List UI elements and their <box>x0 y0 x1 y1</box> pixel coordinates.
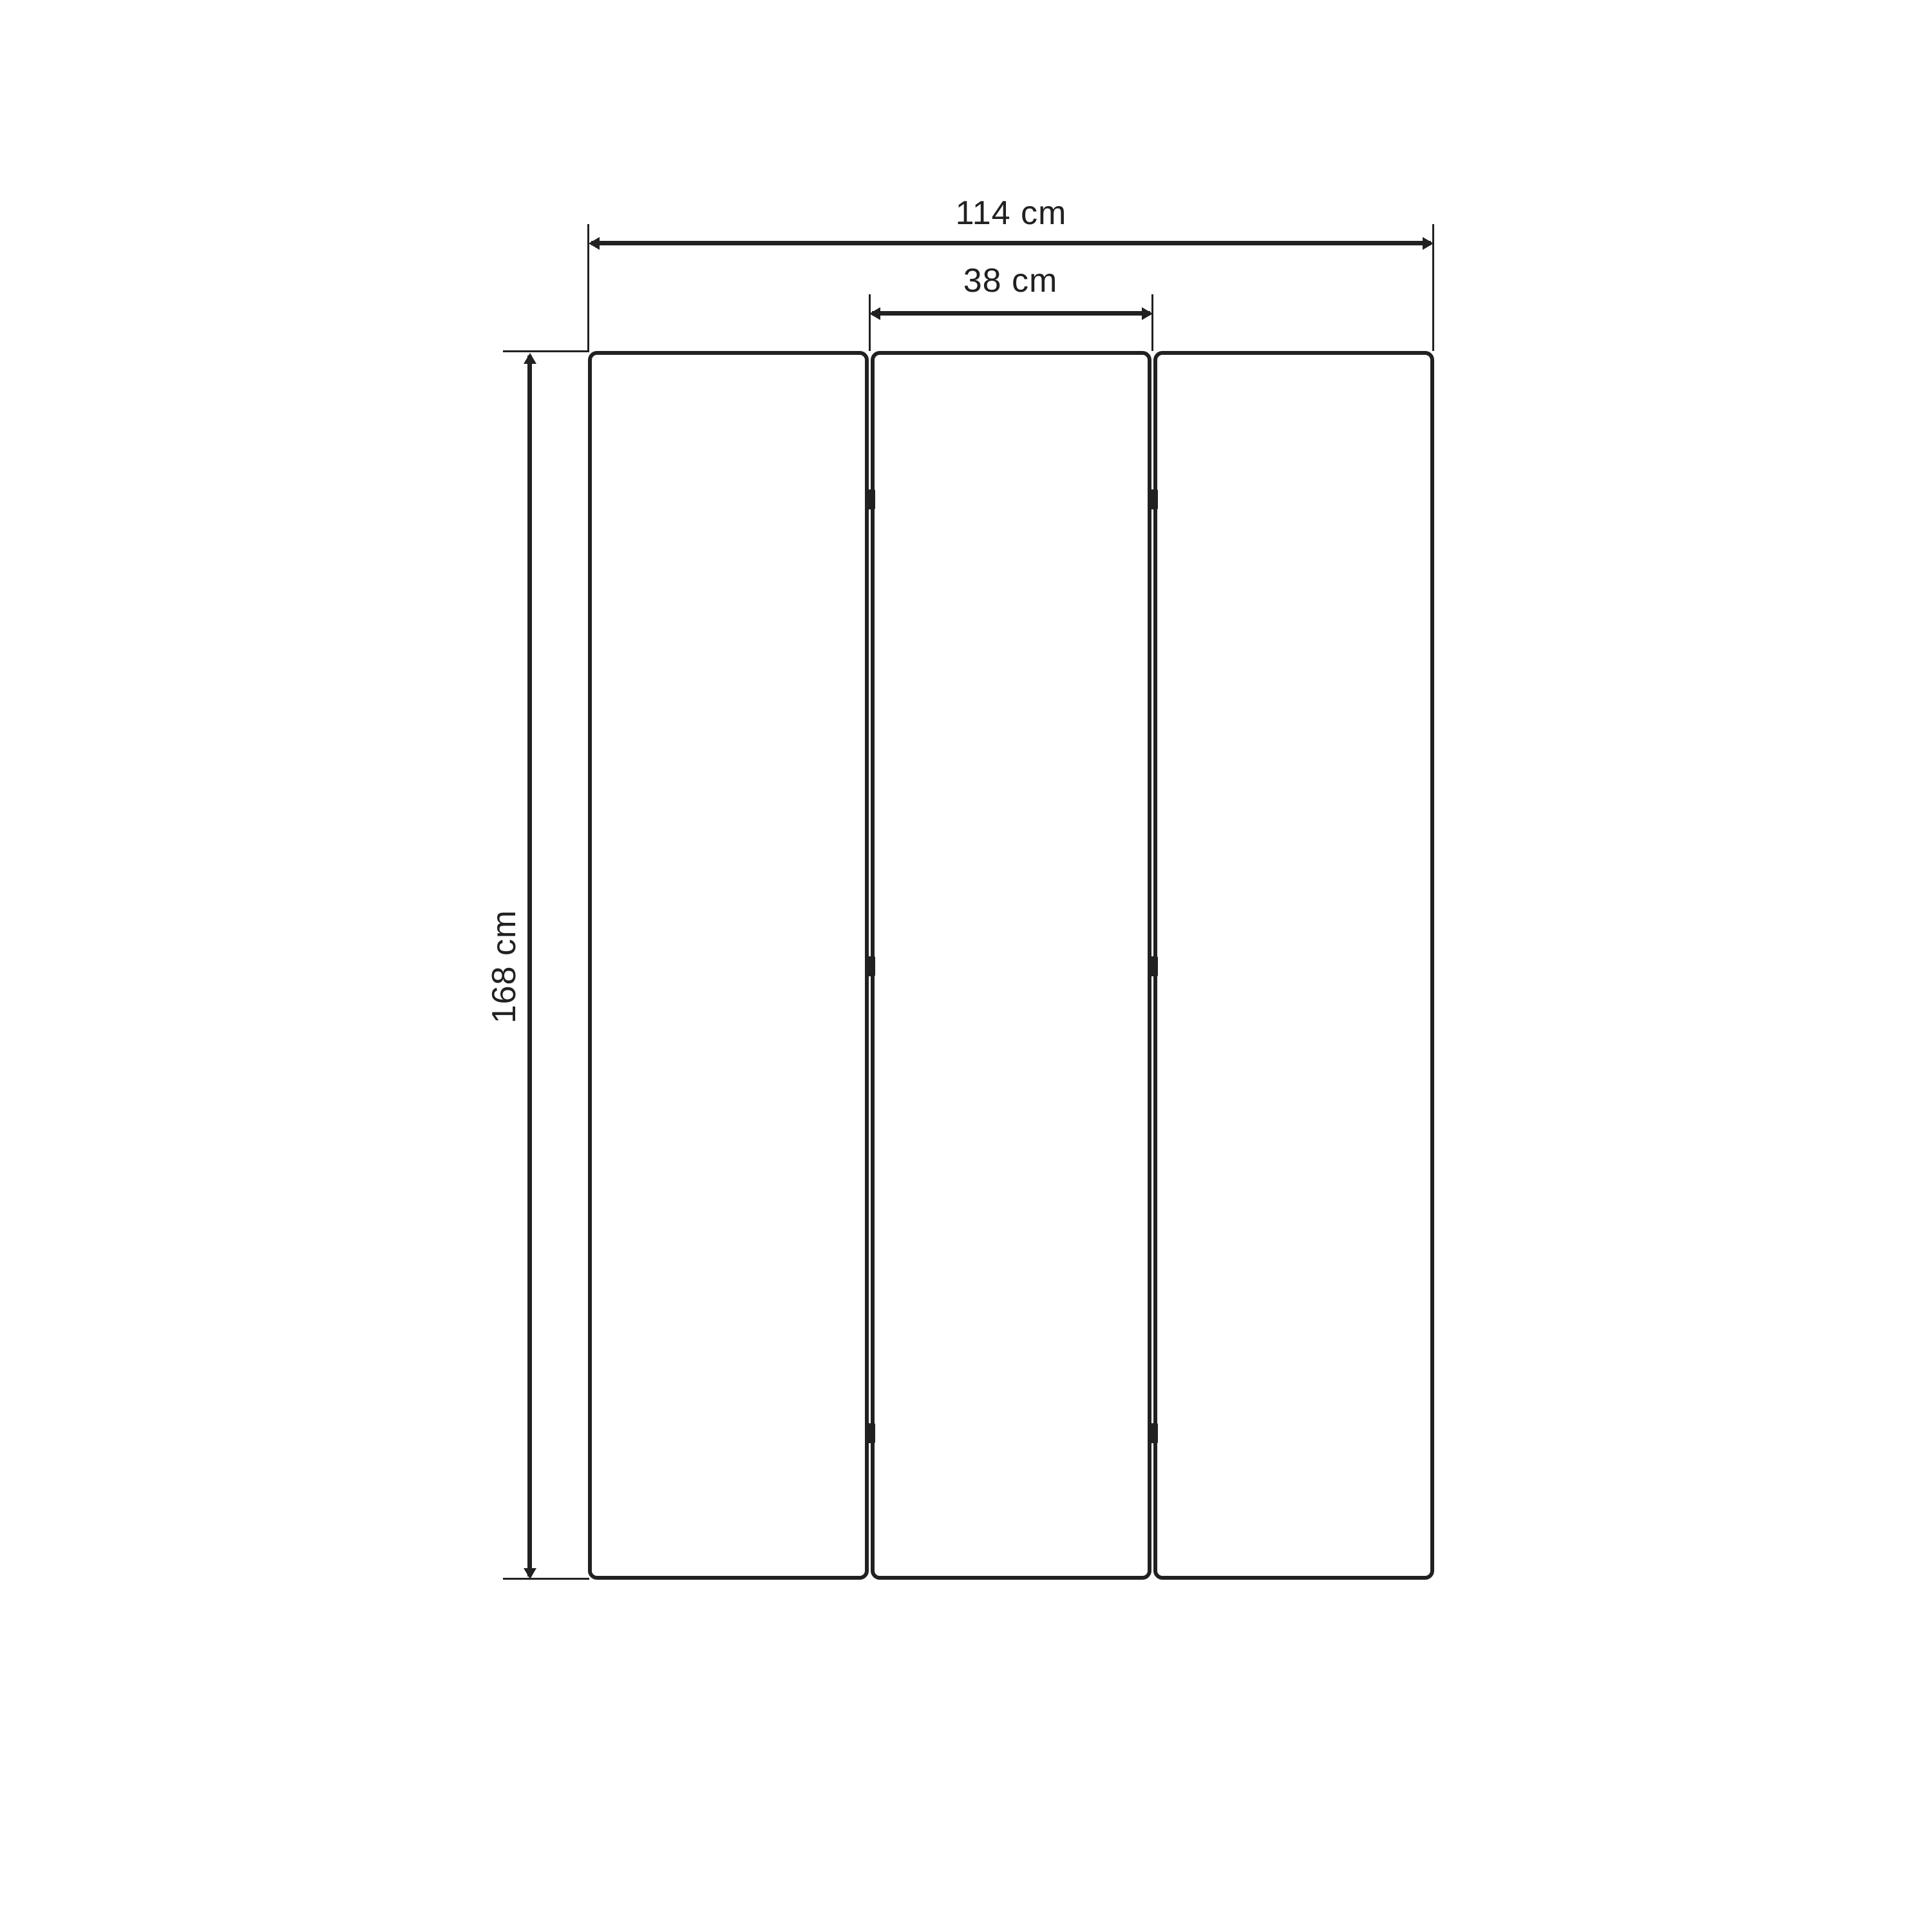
hinge-left-bottom <box>865 1423 875 1443</box>
extension-line-panel-width-left <box>869 294 871 351</box>
extension-line-panel-width-right <box>1151 294 1153 351</box>
panel-left <box>588 351 869 1580</box>
dimension-drawing-canvas: 114 cm 38 cm 168 cm <box>0 0 1932 1932</box>
hinge-right-bottom <box>1148 1423 1158 1443</box>
hinge-left-top <box>865 489 875 509</box>
hinge-right-middle <box>1148 956 1158 976</box>
hinge-right-top <box>1148 489 1158 509</box>
overall-width-label: 114 cm <box>956 194 1067 232</box>
dimension-shaft <box>872 311 1150 316</box>
height-label: 168 cm <box>485 910 524 1024</box>
dimension-shaft <box>591 241 1431 245</box>
dimension-line-panel-width <box>869 307 1153 320</box>
arrowhead-down-icon <box>524 1568 536 1579</box>
arrowhead-right-icon <box>1423 237 1434 250</box>
dimension-line-overall-width <box>589 237 1434 250</box>
panel-middle <box>871 351 1151 1580</box>
extension-line-height-bottom <box>503 1578 589 1580</box>
dimension-line-height <box>524 353 536 1579</box>
extension-line-height-top <box>503 350 589 352</box>
panel-width-label: 38 cm <box>963 261 1058 300</box>
dimension-shaft <box>527 355 532 1577</box>
arrowhead-right-icon <box>1142 307 1153 320</box>
panel-right <box>1153 351 1434 1580</box>
hinge-left-middle <box>865 956 875 976</box>
